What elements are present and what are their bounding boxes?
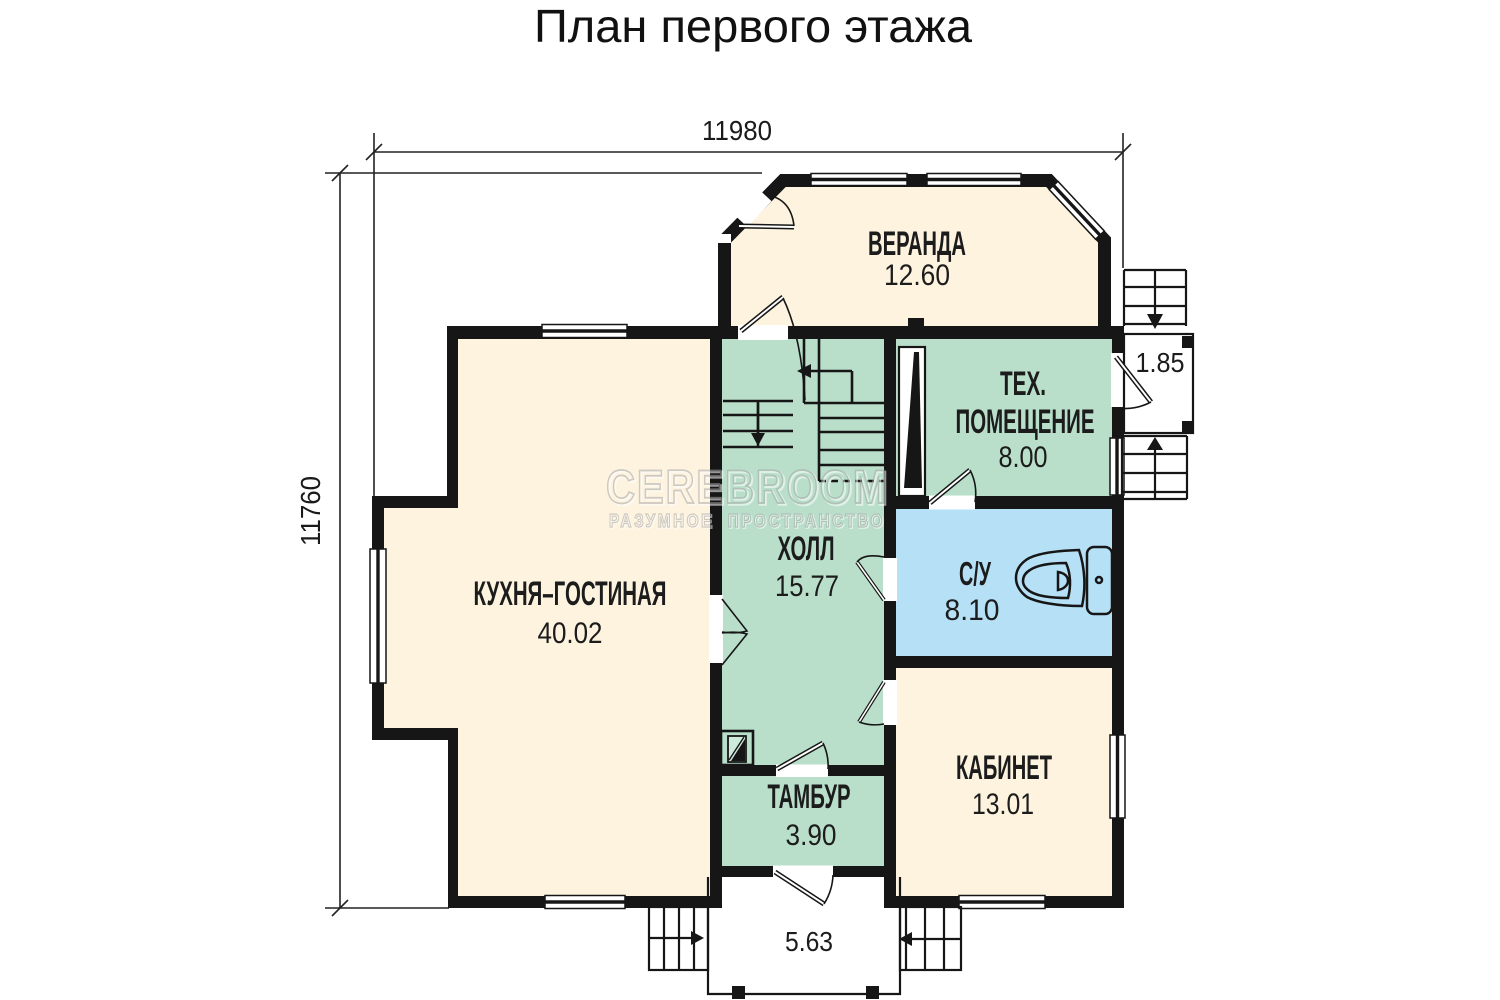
svg-text:15.77: 15.77 xyxy=(775,570,839,603)
svg-text:ВЕРАНДА: ВЕРАНДА xyxy=(868,225,966,263)
svg-text:CEREBROOM: CEREBROOM xyxy=(606,460,888,513)
svg-text:План первого этажа: План первого этажа xyxy=(534,0,972,52)
svg-text:С/У: С/У xyxy=(959,555,991,592)
svg-text:11980: 11980 xyxy=(702,115,772,146)
svg-text:3.90: 3.90 xyxy=(786,819,837,852)
svg-text:11760: 11760 xyxy=(295,476,326,546)
svg-text:ХОЛЛ: ХОЛЛ xyxy=(778,530,835,568)
svg-text:13.01: 13.01 xyxy=(972,788,1034,821)
svg-text:40.02: 40.02 xyxy=(538,617,603,650)
svg-text:КАБИНЕТ: КАБИНЕТ xyxy=(956,749,1052,787)
svg-text:КУХНЯ–ГОСТИНАЯ: КУХНЯ–ГОСТИНАЯ xyxy=(474,575,667,613)
svg-text:ПОМЕЩЕНИЕ: ПОМЕЩЕНИЕ xyxy=(956,403,1095,441)
svg-text:РАЗУМНОЕ ПРОСТРАНСТВО: РАЗУМНОЕ ПРОСТРАНСТВО xyxy=(609,511,885,531)
svg-text:ТАМБУР: ТАМБУР xyxy=(768,778,851,816)
svg-text:8.00: 8.00 xyxy=(999,441,1048,474)
svg-text:1.85: 1.85 xyxy=(1136,347,1185,378)
svg-text:ТЕХ.: ТЕХ. xyxy=(1000,365,1046,403)
svg-text:12.60: 12.60 xyxy=(884,259,950,292)
svg-text:8.10: 8.10 xyxy=(945,594,1000,627)
svg-text:5.63: 5.63 xyxy=(785,926,833,957)
